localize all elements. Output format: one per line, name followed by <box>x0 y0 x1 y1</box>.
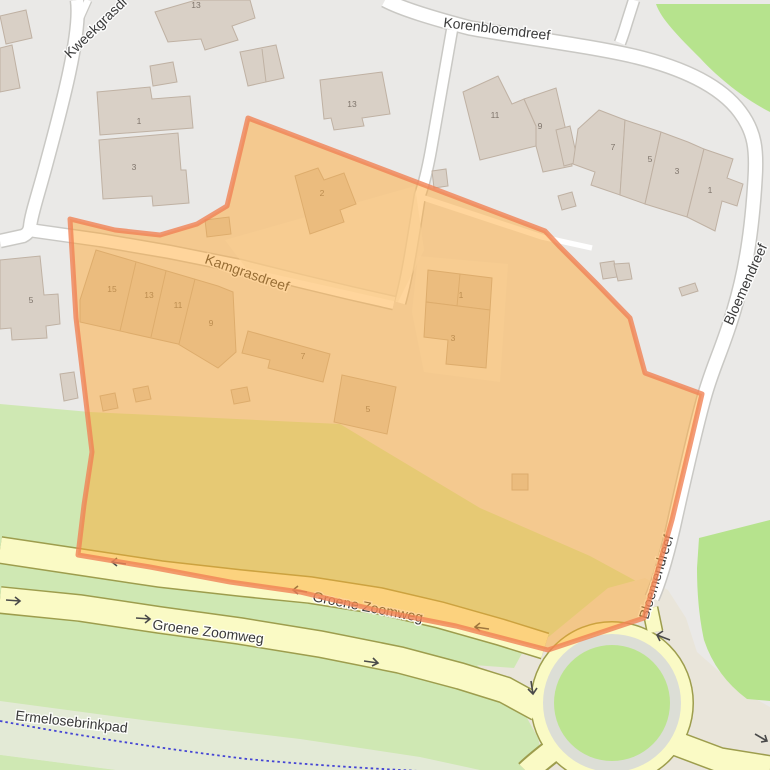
svg-text:5: 5 <box>648 154 653 164</box>
svg-text:5: 5 <box>29 295 34 305</box>
svg-text:11: 11 <box>491 110 500 120</box>
svg-text:3: 3 <box>132 162 137 172</box>
svg-text:13: 13 <box>191 0 201 10</box>
svg-text:13: 13 <box>347 99 357 109</box>
svg-text:1: 1 <box>708 185 713 195</box>
svg-text:1: 1 <box>137 116 142 126</box>
svg-text:9: 9 <box>538 121 543 131</box>
svg-text:7: 7 <box>611 142 616 152</box>
svg-text:3: 3 <box>675 166 680 176</box>
